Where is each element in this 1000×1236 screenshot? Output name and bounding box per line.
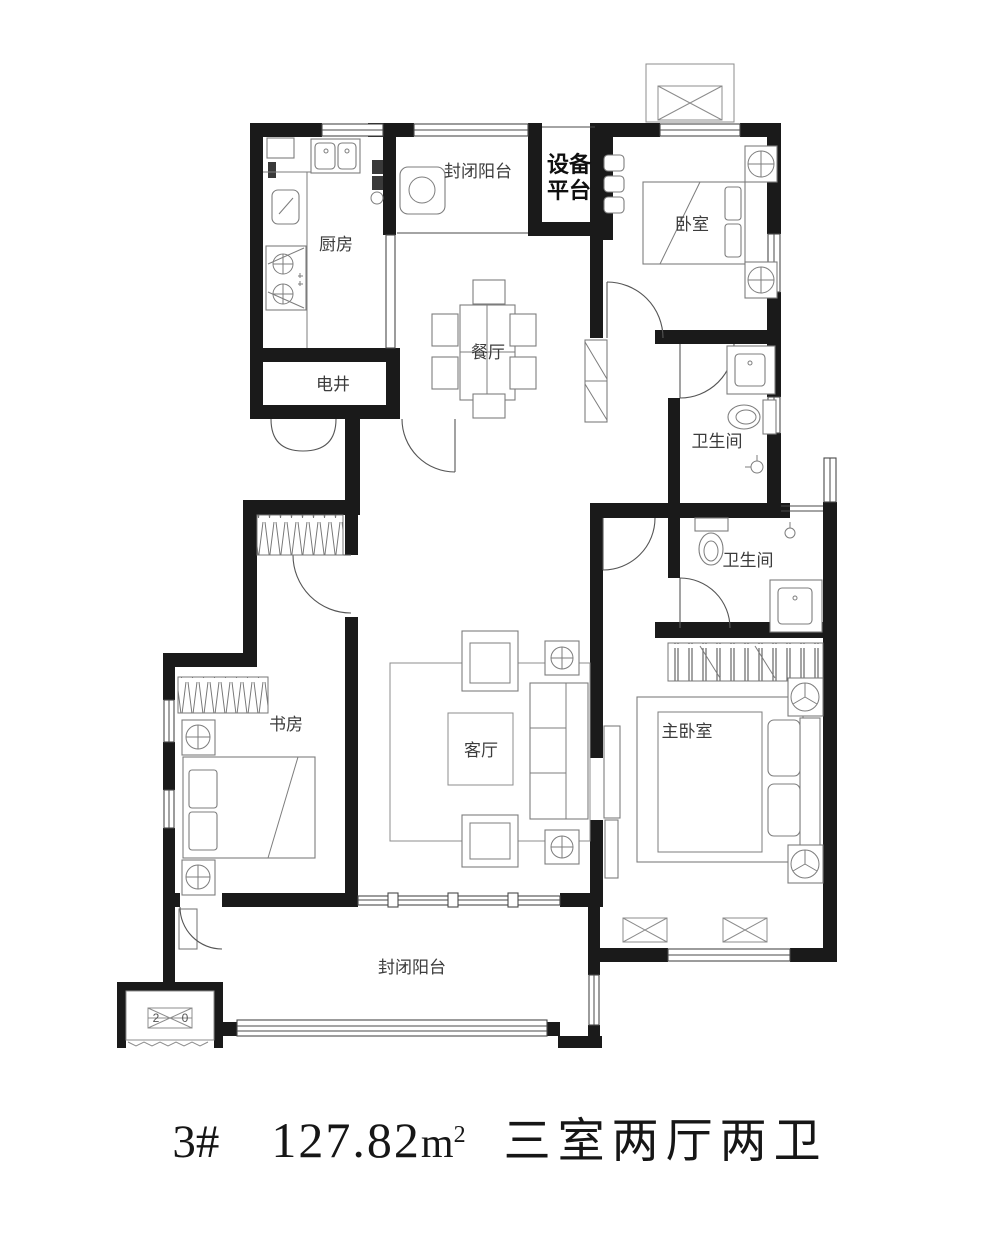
entry-door: [402, 419, 455, 472]
ac-marker-right: 0: [182, 1011, 189, 1025]
ac-marker-left: 2: [153, 1011, 160, 1025]
room-label-equipment-2: 平台: [547, 178, 591, 203]
kitchen-sink-icon: [311, 139, 360, 173]
room-label-bath-lower: 卫生间: [723, 551, 774, 570]
bedroom-furniture: [604, 64, 777, 298]
cutting-board-icon: [272, 190, 299, 224]
chair-icon: [432, 357, 458, 389]
sliding-window: [358, 893, 560, 907]
window: [589, 975, 599, 1025]
window: [824, 458, 836, 502]
radiator-icon: [604, 155, 624, 171]
ac-inner-outline: [126, 991, 214, 1040]
room-label-dining: 餐厅: [471, 343, 505, 362]
radiator-icon: [604, 176, 624, 192]
dining-furniture: [432, 280, 607, 422]
room-label-study: 书房: [269, 715, 303, 734]
study-door: [293, 555, 351, 613]
bath-lower-door: [680, 578, 730, 628]
building-unit-number: 3#: [172, 1116, 219, 1168]
window: [164, 790, 174, 828]
chair-icon: [473, 394, 505, 418]
ac-platform: 2 0: [126, 991, 214, 1046]
nightstand-icon: [182, 720, 215, 755]
armchair-icon: [462, 631, 518, 691]
sofa-icon: [530, 683, 588, 819]
floor-plan-canvas: 2 0 厨房 封闭阳台 设备 平台 卧室 餐厅 电井 卫生间 卫生间 书房 客厅…: [0, 0, 1000, 1236]
nightstand-icon: [182, 860, 215, 895]
kitchen-partition: [386, 235, 395, 348]
chair-icon: [510, 357, 536, 389]
side-table-icon: [545, 641, 579, 675]
floor-drain-icon: [785, 522, 795, 538]
plan-caption: 3#127.82m2三室两厅两卫: [0, 1102, 1000, 1171]
wall-vent-box: [623, 918, 667, 942]
armchair-icon: [462, 815, 518, 867]
sink-vanity-icon: [727, 346, 775, 394]
room-label-master: 主卧室: [662, 722, 713, 741]
hall-cabinet-icon: [585, 340, 607, 422]
nightstand-icon: [745, 146, 777, 182]
boiler-icon: [371, 160, 383, 204]
window: [414, 124, 528, 136]
balcony-top-furniture: [400, 167, 445, 214]
area-value: 127.82: [271, 1112, 421, 1168]
window: [164, 700, 174, 742]
master-furniture: [623, 643, 823, 942]
room-label-bedroom: 卧室: [675, 215, 709, 234]
chair-icon: [473, 280, 505, 304]
bath-upper-door: [680, 344, 734, 398]
stove-icon: [266, 246, 306, 310]
room-label-bath-upper: 卫生间: [692, 432, 743, 451]
bed-icon: [183, 757, 315, 858]
suite-corridor-door: [603, 518, 655, 570]
room-label-balcony-bottom: 封闭阳台: [378, 958, 446, 977]
chair-icon: [510, 314, 536, 346]
bedroom-door: [607, 282, 663, 338]
room-label-balcony-top: 封闭阳台: [444, 162, 512, 181]
room-label-kitchen: 厨房: [319, 235, 353, 254]
master-door-panels: [604, 726, 620, 878]
area-unit: m2: [421, 1121, 466, 1167]
wall-vent-box: [723, 918, 767, 942]
sink-vanity-icon: [770, 580, 822, 632]
radiator-icon: [604, 197, 624, 213]
exterior-window-box: [646, 64, 734, 122]
side-table-icon: [545, 830, 579, 864]
balcony-window: [237, 1020, 547, 1036]
chair-icon: [432, 314, 458, 346]
bath-lower-furniture: [695, 518, 822, 632]
washing-machine-icon: [400, 167, 445, 214]
room-label-equipment-1: 设备: [547, 152, 592, 177]
floor-drain-icon: [745, 455, 763, 473]
layout-type: 三室两厅两卫: [504, 1116, 828, 1168]
nightstand-icon: [788, 678, 823, 716]
toilet-icon: [728, 400, 776, 434]
study-furniture: [178, 515, 343, 895]
nightstand-icon: [745, 262, 777, 298]
wardrobe-icon: [178, 677, 268, 713]
nightstand-icon: [788, 845, 823, 883]
window: [322, 124, 383, 136]
room-label-living: 客厅: [464, 741, 498, 760]
balcony-door: [179, 907, 222, 949]
wardrobe-icon: [668, 643, 823, 681]
window: [660, 124, 740, 136]
room-label-shaft: 电井: [316, 375, 350, 394]
cabinet-icon: [267, 138, 294, 158]
switch-box-icon: [268, 162, 276, 178]
hatch-strip: [128, 1042, 208, 1046]
shaft-double-door: [271, 419, 336, 451]
floor-plan-page: 2 0 厨房 封闭阳台 设备 平台 卧室 餐厅 电井 卫生间 卫生间 书房 客厅…: [0, 0, 1000, 1236]
wardrobe-icon: [257, 515, 343, 555]
window: [668, 949, 790, 961]
